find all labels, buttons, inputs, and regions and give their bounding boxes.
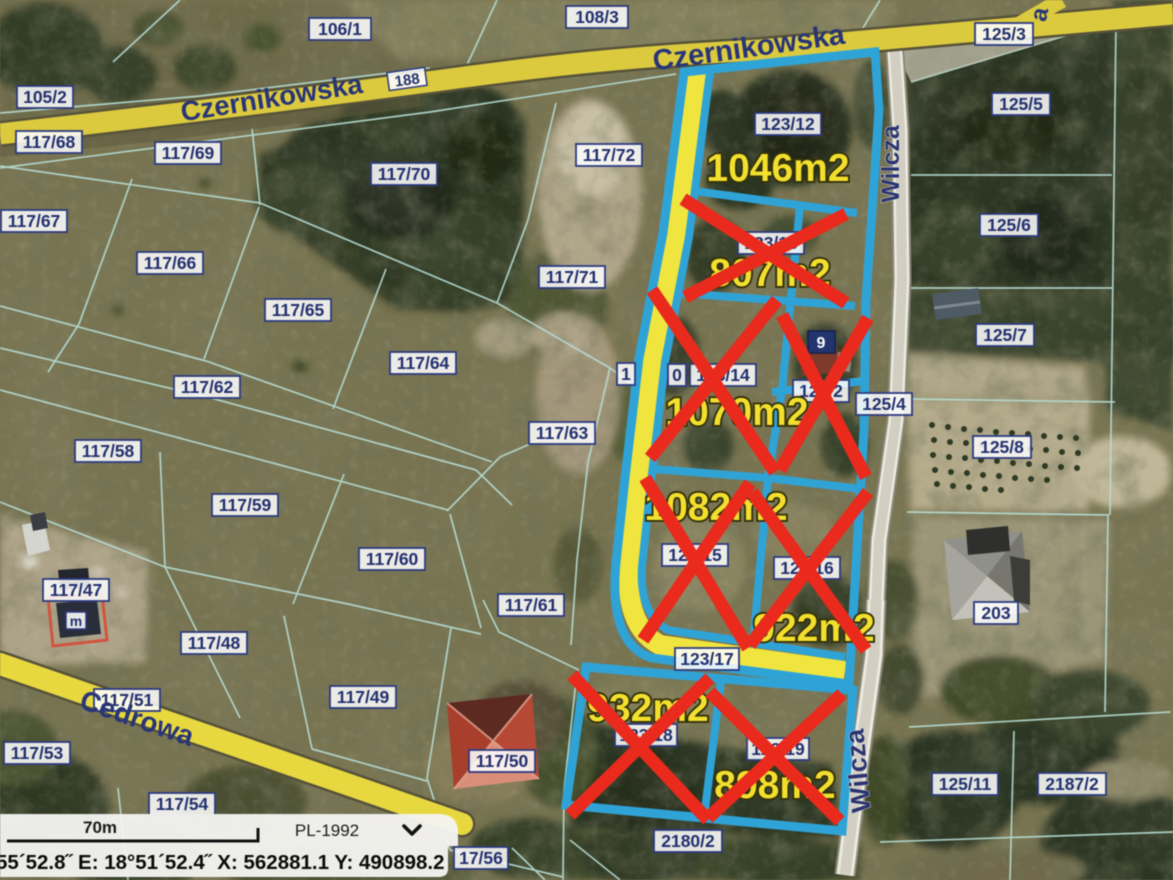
svg-text:m: m (70, 613, 82, 629)
svg-text:117/48: 117/48 (188, 633, 241, 653)
svg-text:108/3: 108/3 (575, 7, 619, 27)
svg-text:PL-1992: PL-1992 (295, 821, 359, 840)
svg-text:125/7: 125/7 (983, 325, 1027, 345)
svg-text:117/60: 117/60 (366, 549, 419, 569)
svg-text:70m: 70m (83, 818, 117, 837)
svg-text:1: 1 (621, 364, 631, 384)
svg-text:Wilcza: Wilcza (877, 124, 905, 203)
svg-text:117/58: 117/58 (82, 441, 135, 461)
svg-text:117/71: 117/71 (546, 267, 599, 287)
svg-text:55´52.8˝ E: 18°51´52.4˝ X: 5: 55´52.8˝ E: 18°51´52.4˝ X: 562881.1 Y: 4… (0, 851, 445, 874)
svg-text:17/56: 17/56 (459, 848, 503, 868)
svg-text:117/54: 117/54 (156, 794, 209, 814)
svg-text:125/11: 125/11 (939, 774, 992, 794)
svg-text:105/2: 105/2 (23, 87, 67, 107)
svg-text:125/3: 125/3 (982, 24, 1026, 44)
svg-text:125/8: 125/8 (980, 437, 1024, 457)
svg-text:125/6: 125/6 (987, 215, 1031, 235)
svg-text:2180/2: 2180/2 (661, 831, 715, 851)
svg-text:125/5: 125/5 (999, 94, 1043, 114)
svg-text:0: 0 (672, 365, 682, 385)
svg-text:117/66: 117/66 (144, 253, 197, 273)
svg-text:1046m2: 1046m2 (706, 147, 849, 190)
svg-text:117/47: 117/47 (50, 580, 103, 600)
svg-text:123/17: 123/17 (680, 649, 734, 669)
svg-text:117/68: 117/68 (23, 132, 76, 152)
svg-text:117/53: 117/53 (11, 743, 64, 763)
svg-text:123/12: 123/12 (761, 114, 815, 134)
svg-text:125/4: 125/4 (862, 394, 906, 414)
svg-text:117/62: 117/62 (181, 377, 234, 397)
svg-text:117/65: 117/65 (272, 300, 325, 320)
svg-text:117/69: 117/69 (162, 143, 215, 163)
svg-text:117/49: 117/49 (337, 687, 390, 707)
svg-text:117/59: 117/59 (219, 495, 272, 515)
svg-text:106/1: 106/1 (318, 19, 362, 39)
svg-text:117/63: 117/63 (536, 423, 589, 443)
svg-text:117/50: 117/50 (476, 751, 529, 771)
svg-text:203: 203 (981, 603, 1010, 623)
svg-text:2187/2: 2187/2 (1045, 774, 1099, 794)
svg-text:117/61: 117/61 (505, 595, 558, 615)
svg-text:188: 188 (394, 70, 421, 90)
svg-text:9: 9 (817, 335, 826, 352)
svg-text:117/72: 117/72 (583, 145, 636, 165)
svg-text:117/67: 117/67 (8, 211, 61, 231)
svg-text:117/64: 117/64 (397, 353, 450, 373)
svg-text:117/70: 117/70 (378, 164, 431, 184)
